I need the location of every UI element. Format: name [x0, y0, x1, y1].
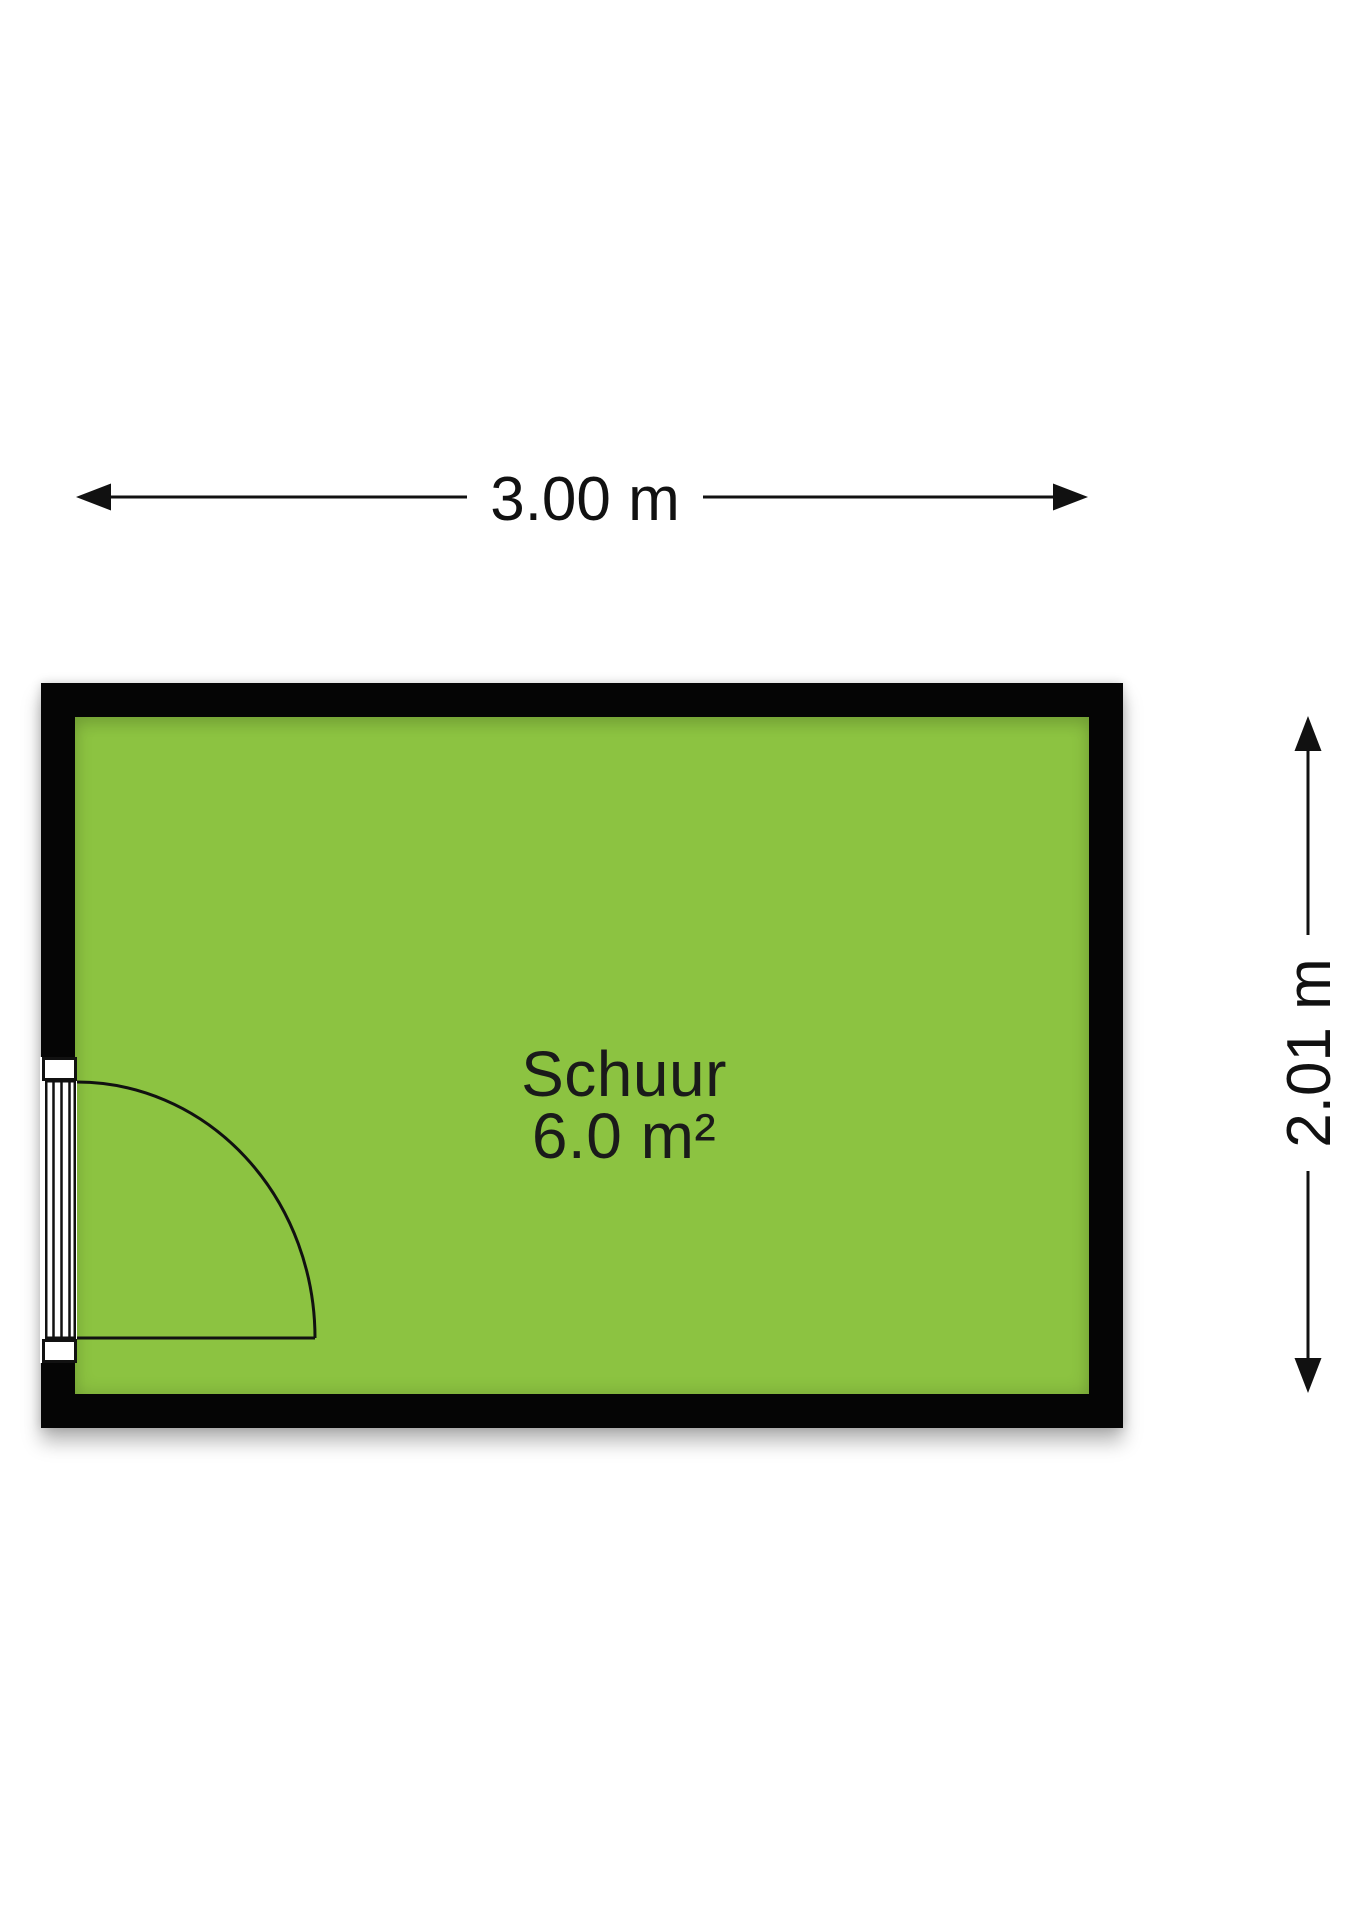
height-dimension-label: 2.01 m [1275, 958, 1344, 1148]
width-dimension: 3.00 m [76, 465, 1088, 534]
door-frame-bottom [44, 1341, 76, 1362]
arrowhead-up-icon [1295, 716, 1322, 751]
floorplan-canvas: Schuur 6.0 m² 3.00 m 2.01 m [0, 0, 1358, 1920]
height-dimension: 2.01 m [1275, 716, 1344, 1393]
door-frame-top [44, 1059, 76, 1080]
width-dimension-label: 3.00 m [490, 465, 680, 534]
arrowhead-right-icon [1053, 484, 1088, 511]
arrowhead-down-icon [1295, 1358, 1322, 1393]
door-swing-arc [77, 1082, 315, 1338]
arrowhead-left-icon [76, 484, 111, 511]
annotations-layer: 3.00 m 2.01 m [0, 0, 1358, 1920]
door [40, 1057, 315, 1363]
